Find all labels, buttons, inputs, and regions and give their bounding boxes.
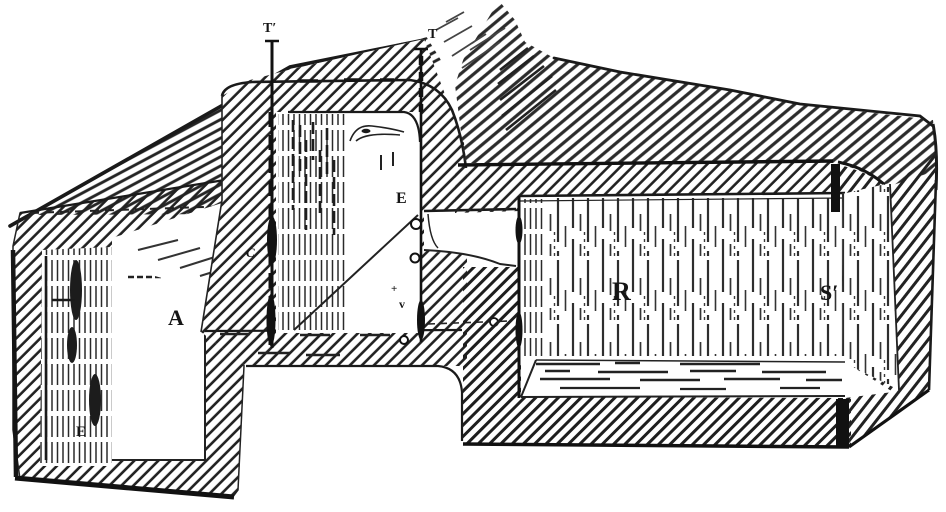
svg-text:E: E	[76, 424, 86, 440]
svg-text:T′: T′	[263, 21, 276, 36]
svg-text:+: +	[391, 283, 397, 295]
svg-text:A: A	[168, 305, 184, 330]
svg-text:S′: S′	[820, 280, 838, 305]
svg-text:E: E	[396, 190, 407, 207]
svg-text:T: T	[428, 27, 438, 42]
svg-text:v: v	[399, 297, 405, 311]
svg-text:R: R	[612, 277, 631, 306]
svg-text:C: C	[246, 245, 255, 260]
